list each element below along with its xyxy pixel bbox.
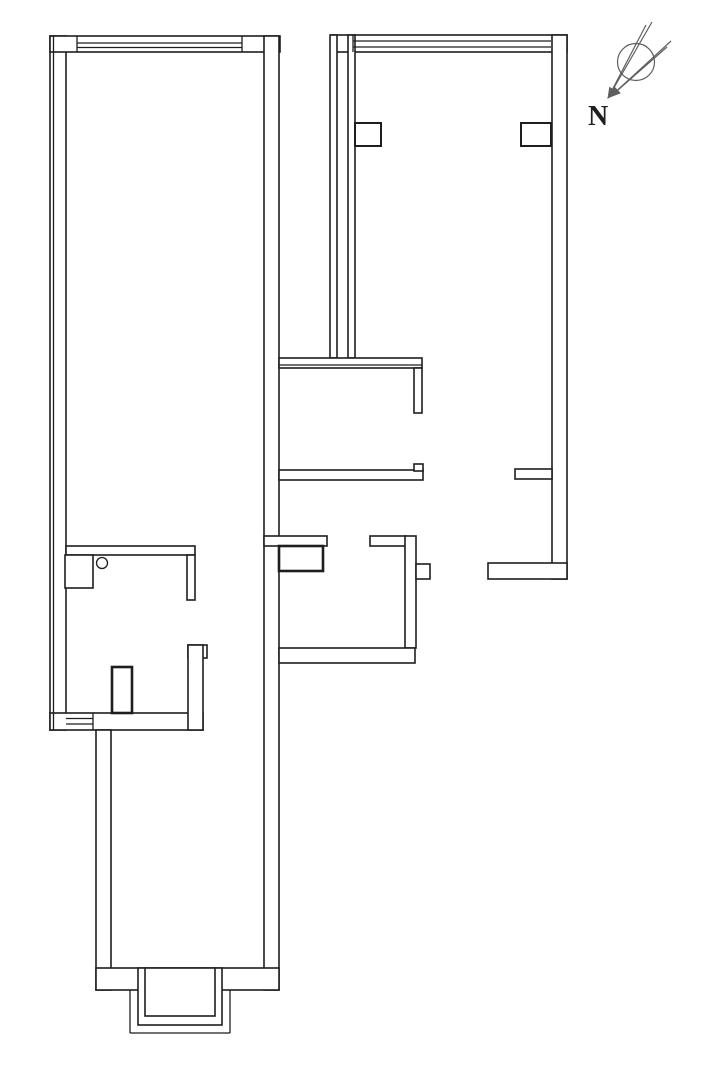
bath2-top-wall	[66, 546, 195, 555]
entry-bottom-wall	[488, 563, 567, 579]
bedroom-left-wall-outer	[330, 35, 337, 358]
entry-stub-wall	[515, 469, 552, 479]
north-label: N	[588, 101, 608, 132]
north-compass-icon: N	[588, 22, 671, 132]
living-top-wall	[50, 36, 280, 52]
bedroom-top-wall	[331, 35, 567, 52]
needle-1-edge-b	[608, 25, 646, 98]
kitchen-top-wall-right	[370, 536, 406, 546]
duct-box-right	[521, 123, 551, 146]
kitchen-bottom-wall	[279, 648, 415, 663]
balcony-room-left-wall	[96, 730, 111, 990]
hall-window-wall	[50, 713, 203, 730]
bath-bottom-wall	[279, 470, 423, 480]
bedroom-right-wall	[552, 35, 567, 579]
kitchen-right-wall	[405, 536, 416, 648]
bath-door-notch	[414, 464, 423, 471]
kitchen-counter	[279, 546, 323, 571]
pipe-shaft	[112, 667, 132, 713]
hall-wall	[188, 645, 203, 730]
living-right-wall	[264, 36, 279, 990]
floor-plan-page: N	[0, 0, 713, 1074]
floor-plan-canvas: N	[0, 0, 713, 1074]
walls-layer	[50, 35, 567, 1025]
windows-and-lines-layer	[54, 35, 552, 1033]
outer-wall-left	[50, 36, 66, 730]
bedroom-left-wall-inner	[348, 35, 355, 358]
bath2-right-wall	[187, 555, 195, 600]
kitchen-top-wall-left	[264, 536, 327, 546]
bath-right-wall	[414, 368, 422, 413]
drain-circle	[97, 558, 108, 569]
duct-box-left	[355, 123, 381, 146]
balcony-bottom-wall-right	[215, 968, 279, 990]
bay-window-inner-rect	[145, 968, 215, 1016]
washbasin	[65, 555, 93, 588]
kitchen-stub-wall	[416, 564, 430, 579]
bath-top-wall	[279, 358, 422, 368]
fixtures-layer	[97, 558, 108, 569]
